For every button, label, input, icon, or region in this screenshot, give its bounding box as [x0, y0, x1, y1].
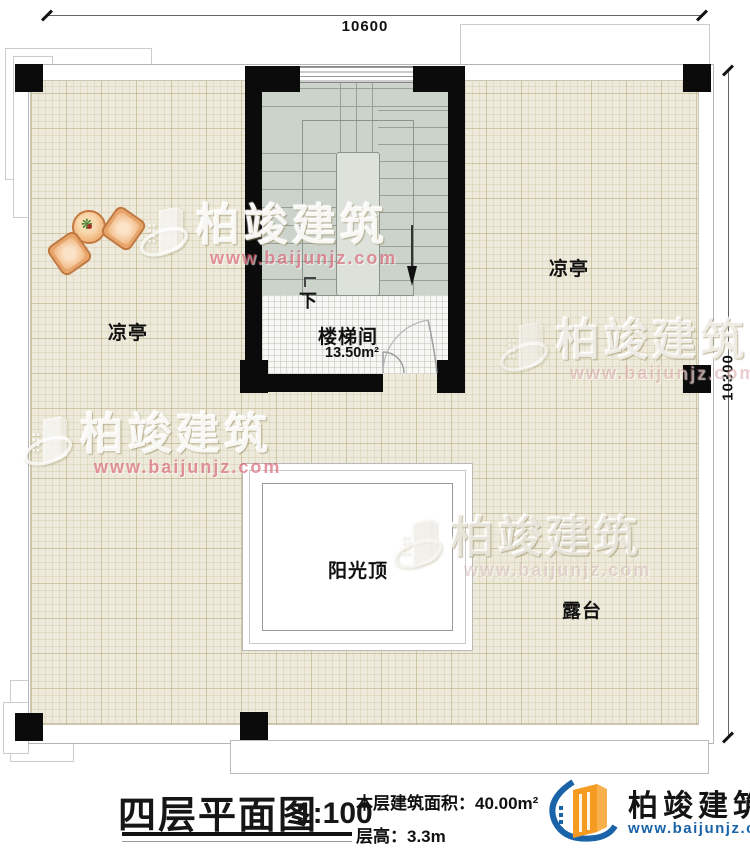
brand-logo-icon	[543, 776, 623, 846]
column	[683, 64, 711, 92]
room-label-pavilion-right: 凉亭	[549, 254, 589, 281]
column	[15, 64, 43, 92]
brand-name: 柏竣建筑	[628, 781, 750, 825]
floor-area-text: 本层建筑面积：40.00m²	[356, 789, 538, 814]
room-label-terrace: 露台	[562, 596, 602, 623]
stair-wall-top-right	[413, 66, 465, 92]
title-block-box	[230, 740, 709, 774]
room-label-skylight: 阳光顶	[328, 556, 388, 583]
title-underline-thin	[122, 841, 352, 842]
chair-cushion	[106, 211, 141, 246]
room-label-pavilion-left: 凉亭	[108, 318, 148, 345]
stair-down-leader	[304, 277, 316, 279]
floor-height-value: 3.3m	[407, 827, 446, 846]
stair-direction-arrow-head	[407, 266, 417, 286]
plan-title: 四层平面图	[118, 784, 318, 839]
stair-corner-block	[240, 360, 268, 393]
title-underline	[122, 832, 352, 836]
stair-landing-line	[262, 106, 448, 107]
chair-cushion	[52, 236, 87, 271]
stair-wall-top-left	[245, 66, 300, 92]
stairwell-area: 13.50m²	[325, 345, 379, 361]
dimension-line-top	[47, 15, 702, 16]
plant-center-dot	[87, 224, 92, 229]
dimension-label-top: 10600	[330, 18, 400, 35]
stair-wall-left	[245, 66, 262, 393]
floor-area-label: 本层建筑面积：	[356, 794, 475, 813]
dimension-label-right: 10300	[720, 348, 737, 408]
stair-direction-arrow-line	[411, 225, 413, 270]
door-swing	[378, 318, 463, 375]
stair-window	[300, 66, 413, 83]
stair-newel	[336, 152, 380, 296]
stair-down-leader	[304, 277, 306, 287]
column	[240, 712, 268, 740]
stair-down-label: 下	[299, 287, 317, 313]
reference-box-top-right	[460, 24, 710, 67]
brand-url: www.baijunjz.com	[628, 820, 750, 837]
column	[683, 365, 711, 393]
floor-area-value: 40.00m²	[475, 794, 538, 813]
floor-height-label: 层高：	[356, 827, 407, 846]
column	[15, 713, 43, 741]
floor-plan-page: 10600 10300 ❋	[0, 0, 750, 849]
floor-height-text: 层高：3.3m	[356, 822, 446, 847]
